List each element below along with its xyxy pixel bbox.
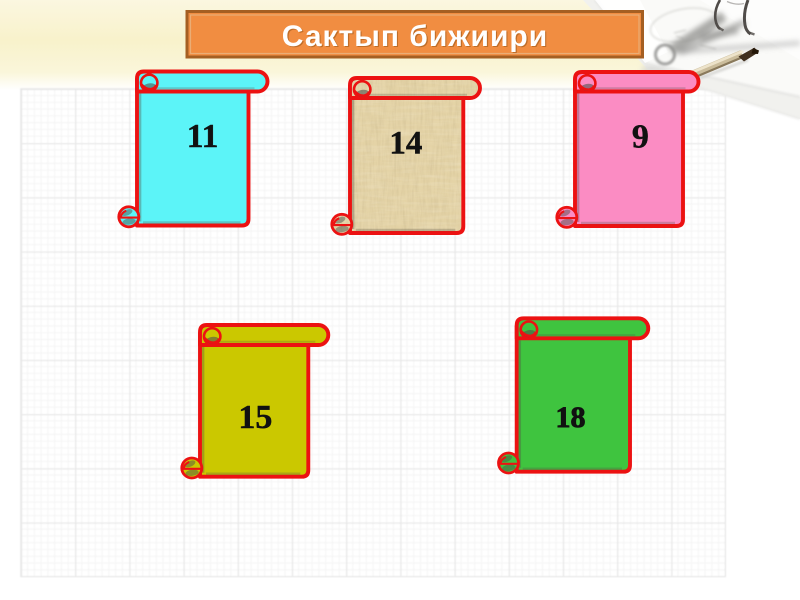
svg-text:9: 9 [632,118,649,155]
svg-text:18: 18 [556,401,586,434]
svg-text:11: 11 [187,118,219,155]
svg-text:Сактып бижиири: Сактып бижиири [282,20,548,53]
svg-text:15: 15 [238,399,272,436]
svg-text:14: 14 [389,126,422,162]
